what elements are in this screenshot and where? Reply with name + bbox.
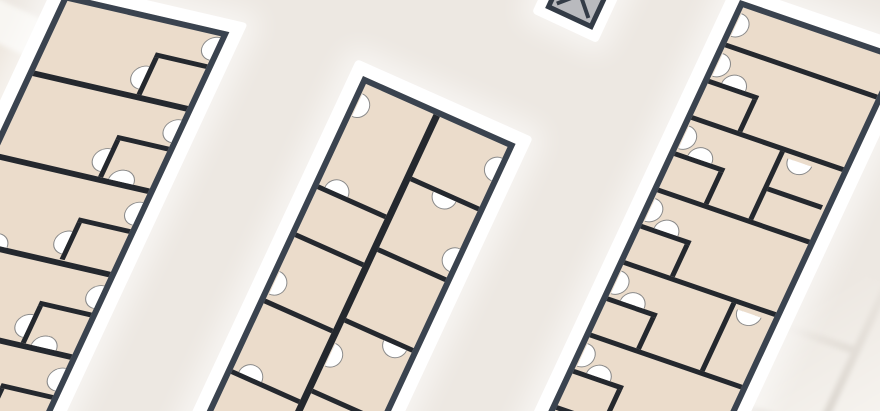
partition-wall (602, 389, 622, 411)
partition-wall (154, 52, 208, 68)
partition-wall (556, 405, 709, 411)
door-swing-icon (158, 117, 182, 144)
partition-wall (115, 135, 169, 151)
partition-wall (748, 151, 784, 221)
partition-wall (0, 401, 34, 411)
door-swing-icon (196, 34, 220, 61)
partition-wall (623, 260, 776, 317)
partition-wall (0, 388, 5, 411)
door-swing-icon (269, 271, 292, 300)
partition-wall (344, 318, 414, 353)
door-swing-icon (782, 158, 812, 178)
apartment-block-left (0, 0, 229, 411)
partition-wall (704, 171, 724, 204)
partition-wall (264, 299, 334, 334)
partition-wall (767, 187, 823, 210)
partition-wall (670, 244, 690, 277)
door-swing-icon (120, 199, 144, 226)
partition-wall (295, 233, 365, 268)
elevator-diagonal-line (570, 0, 590, 19)
partition-wall (317, 184, 387, 219)
door-swing-icon (0, 230, 13, 248)
partition-wall (231, 369, 301, 404)
door-swing-icon (352, 93, 375, 122)
partition-wall (0, 383, 53, 399)
partition-wall (377, 247, 447, 282)
door-swing-icon (731, 13, 754, 41)
partition-wall (38, 301, 92, 317)
partition-wall (700, 302, 736, 372)
floorplan-canvas (0, 0, 880, 411)
partition-wall (636, 316, 656, 349)
door-swing-icon (81, 282, 105, 309)
partition-wall (725, 43, 878, 100)
partition-wall (77, 217, 131, 233)
door-swing-icon (732, 309, 762, 329)
partition-wall (32, 71, 188, 112)
door-swing-icon (437, 243, 460, 272)
door-swing-icon (42, 365, 66, 392)
partition-wall (311, 389, 381, 411)
door-swing-icon (480, 153, 503, 182)
partition-wall (738, 99, 758, 132)
partition-wall (691, 115, 844, 172)
partition-wall (589, 333, 742, 390)
